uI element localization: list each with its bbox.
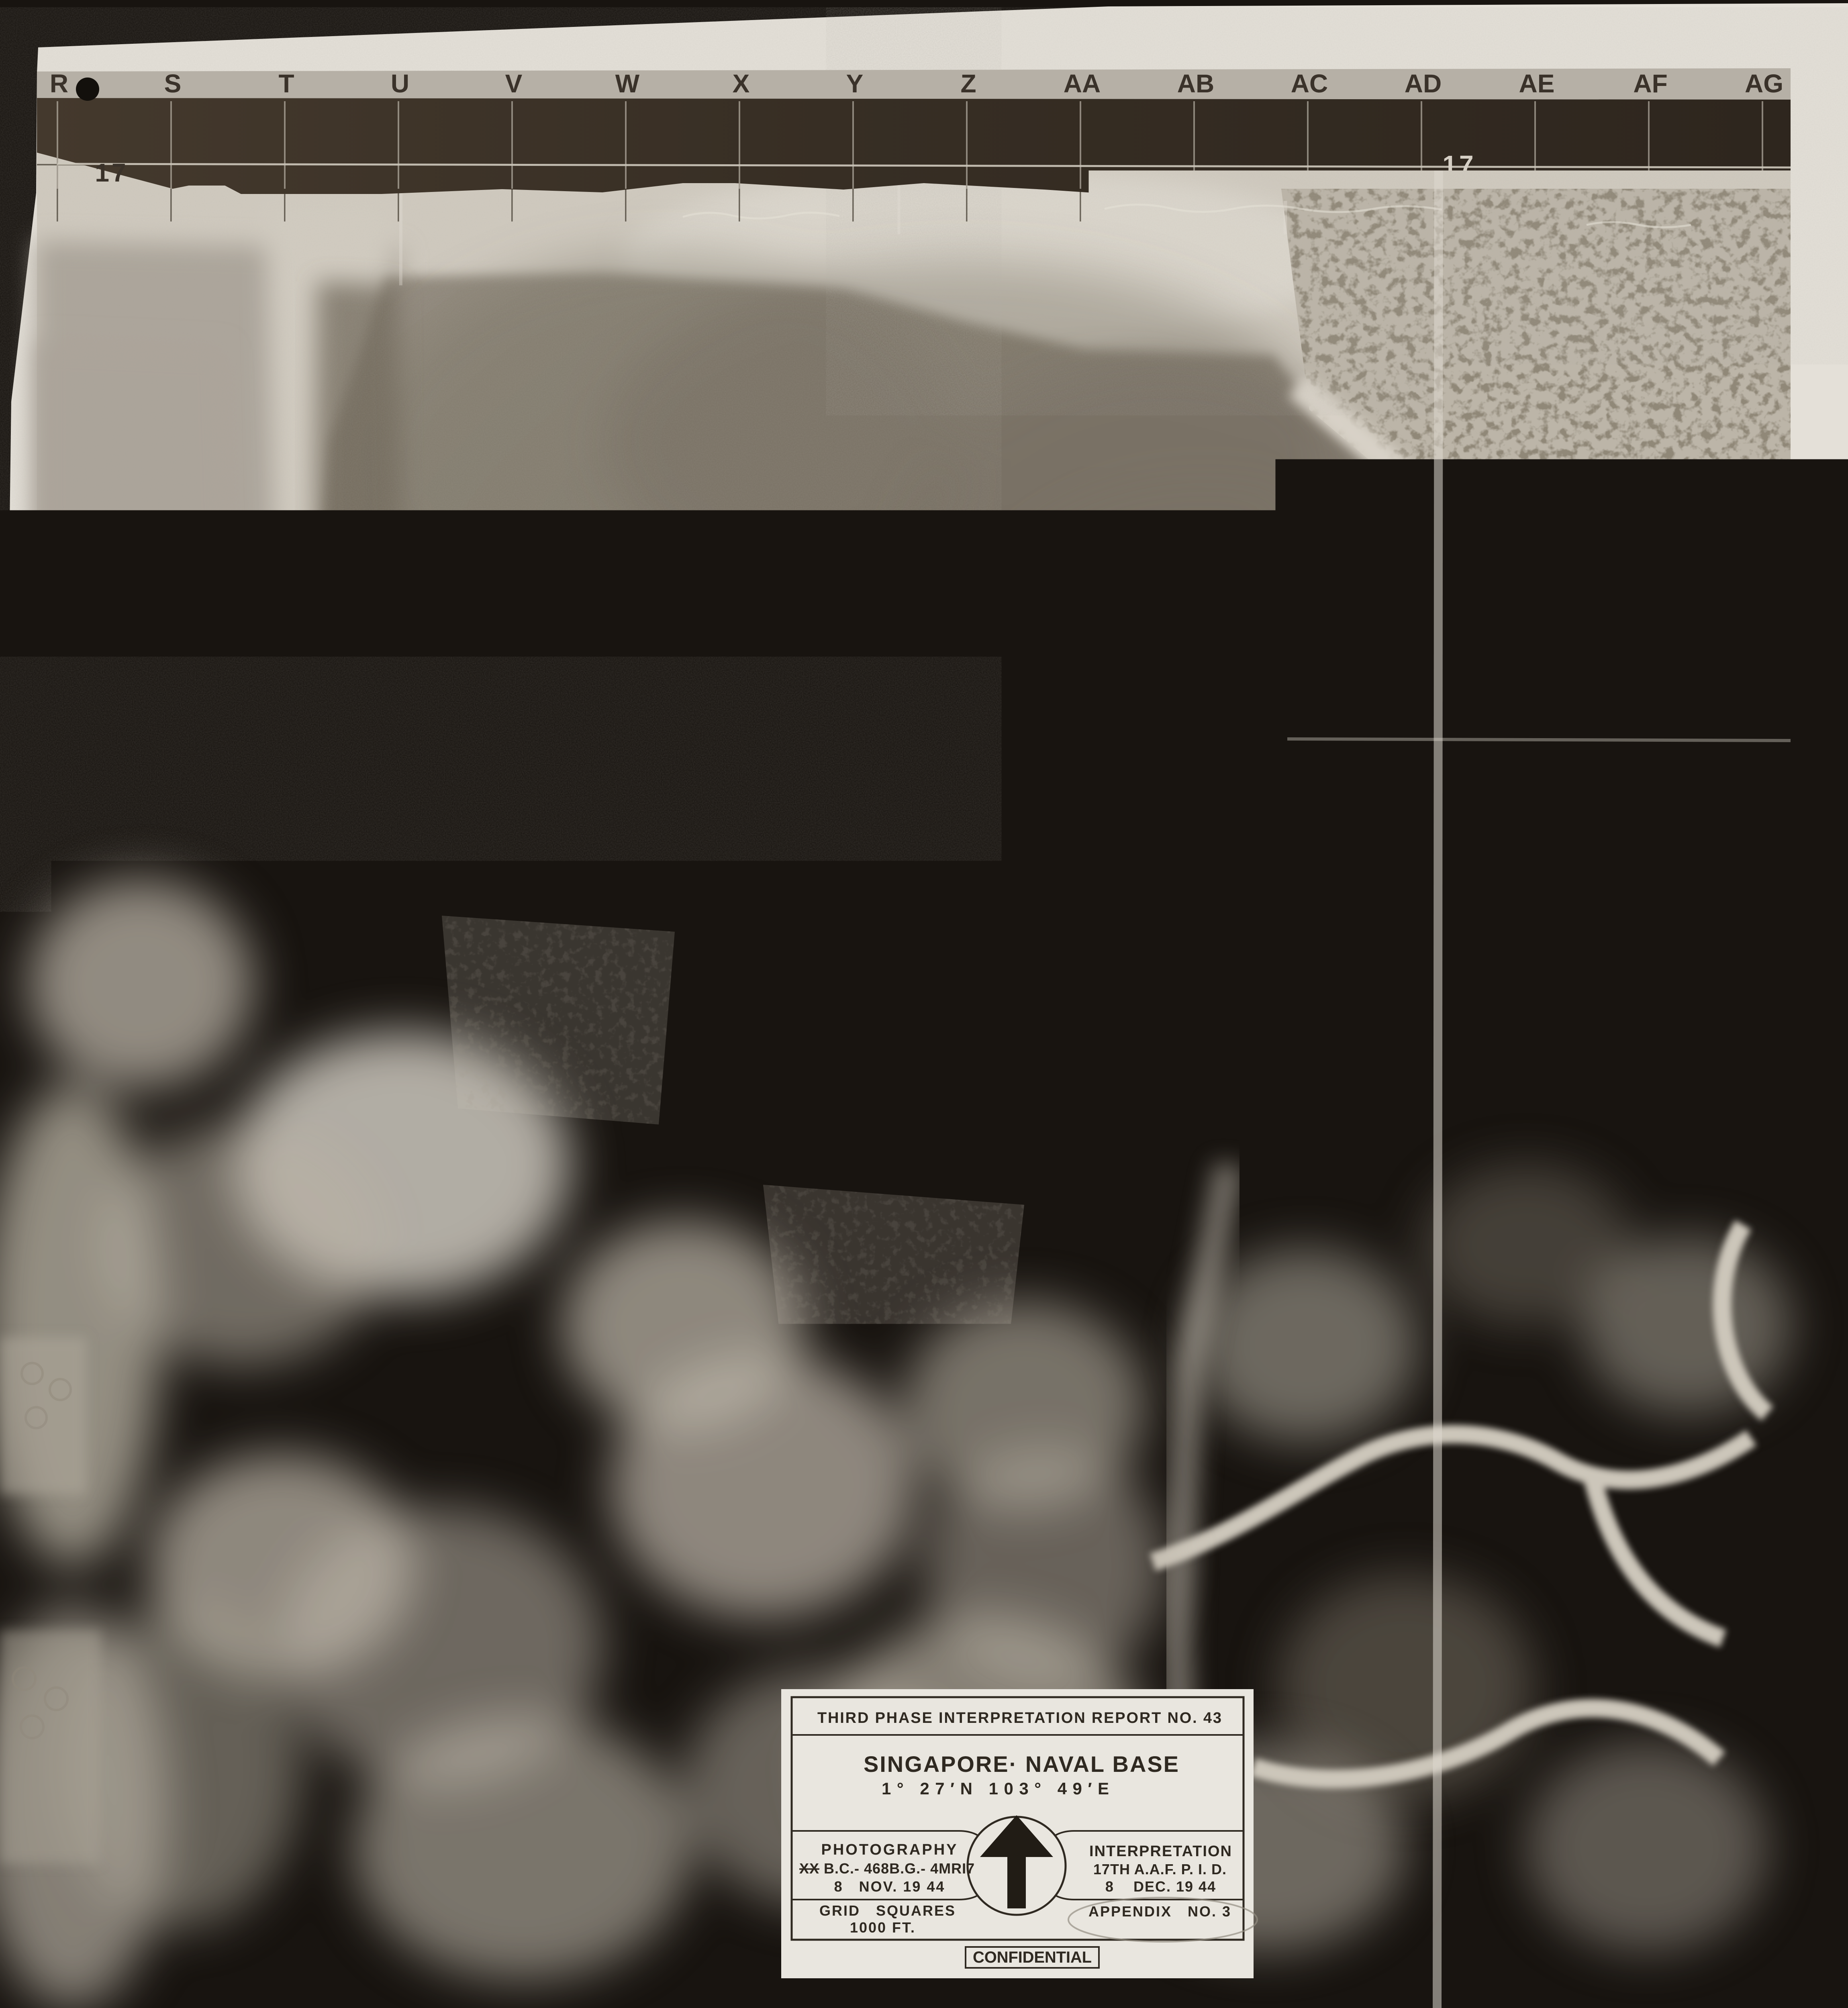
svg-text:17TH A.A.F. P. I. D.: 17TH A.A.F. P. I. D. [1093,1861,1227,1877]
svg-text:T23: T23 [825,1186,858,1204]
svg-text:Z: Z [958,1992,974,2008]
svg-text:3: 3 [828,1123,837,1138]
svg-text:5: 5 [104,1524,119,1552]
svg-text:T17: T17 [548,1471,580,1490]
svg-text:9: 9 [104,1066,119,1094]
svg-text:AB: AB [1175,1993,1212,2008]
svg-text:10: 10 [1444,950,1475,978]
svg-text:APPENDIX NO. 3: APPENDIX NO. 3 [1088,1903,1231,1920]
svg-text:14: 14 [1444,492,1475,520]
svg-text:XII: XII [655,1175,680,1194]
svg-text:AG: AG [1745,69,1783,98]
svg-text:M3: M3 [941,896,967,914]
svg-text:XX B.C.- 468B.G.- 4MRI7: XX B.C.- 468B.G.- 4MRI7 [799,1860,975,1877]
svg-text:U: U [391,69,409,98]
svg-text:8 DEC. 19 44: 8 DEC. 19 44 [1105,1878,1216,1895]
svg-text:10: 10 [96,952,127,980]
svg-text:4: 4 [1225,1206,1234,1221]
svg-text:K33: K33 [251,793,286,812]
svg-text:X: X [733,69,750,98]
svg-text:T27: T27 [1106,1141,1139,1160]
svg-text:N3: N3 [309,744,333,763]
svg-text:AE: AE [1519,69,1555,98]
svg-text:15: 15 [1444,378,1475,406]
svg-text:AE: AE [1517,1994,1552,2008]
svg-text:6: 6 [879,1319,888,1334]
svg-text:P2: P2 [916,872,939,891]
svg-text:VILLAGE: VILLAGE [974,1618,1070,1639]
svg-text:M17: M17 [568,1188,605,1206]
svg-text:U2: U2 [910,777,934,796]
svg-text:8: 8 [104,1181,119,1208]
svg-text:AD: AD [1402,1994,1439,2008]
svg-text:K5: K5 [1196,1174,1220,1193]
svg-text:1000 FT.: 1000 FT. [850,1919,916,1936]
svg-text:THIRD PHASE INTERPRETATION: THIRD PHASE INTERPRETATION REPORT NO. 43 [817,1710,1223,1726]
svg-text:2: 2 [715,1285,723,1300]
svg-text:J2: J2 [755,1254,776,1273]
svg-text:T24: T24 [861,1485,894,1504]
svg-text:CONFIDENTIAL: CONFIDENTIAL [973,1949,1092,1966]
svg-text:M9: M9 [327,690,352,709]
svg-text:1: 1 [513,845,522,860]
svg-text:11: 11 [1444,836,1474,863]
svg-text:M7: M7 [80,647,105,666]
svg-text:K16: K16 [219,793,253,812]
svg-text:N5: N5 [576,394,600,413]
svg-text:AA: AA [1061,1992,1098,2008]
svg-text:4: 4 [458,1364,467,1379]
svg-text:T25: T25 [753,1660,785,1679]
svg-text:N2: N2 [145,712,169,731]
svg-text:S: S [164,69,182,98]
svg-text:S6: S6 [239,1198,262,1217]
svg-text:U: U [388,1990,407,2008]
svg-text:K15: K15 [141,802,176,821]
svg-text:X15: X15 [704,1302,738,1321]
svg-text:N4: N4 [420,616,444,635]
svg-text:12: 12 [96,723,127,751]
svg-text:W: W [613,1990,637,2008]
svg-text:16: 16 [96,265,127,293]
svg-text:T: T [278,69,294,98]
svg-text:T16: T16 [365,1353,398,1372]
svg-text:4: 4 [104,1639,119,1666]
svg-text:SINGAPORE· NAVAL BASE: SINGAPORE· NAVAL BASE [864,1751,1181,1777]
svg-text:K27: K27 [278,1133,312,1151]
svg-text:←1000 FT.→: ←1000 FT.→ [1294,1406,1414,1426]
svg-text:11: 11 [97,837,127,865]
svg-text:JOHORE: JOHORE [117,558,294,582]
svg-text:2: 2 [1452,1866,1467,1894]
svg-text:AB: AB [1177,69,1214,98]
svg-text:T20: T20 [644,1396,677,1415]
svg-text:National Archives of Singapore: National Archives of Singapore [185,1018,1659,1120]
svg-text:X12: X12 [1128,1178,1162,1197]
svg-text:12: 12 [1444,721,1475,749]
svg-text:J3: J3 [254,1289,275,1308]
svg-text:W2: W2 [789,1395,817,1414]
svg-text:GRID SQUARES: GRID SQUARES [819,1902,956,1919]
svg-text:6: 6 [104,1410,119,1437]
svg-text:K19: K19 [429,1336,464,1355]
svg-text:INTERPRETATION: INTERPRETATION [1089,1843,1232,1860]
svg-text:T21: T21 [707,1378,739,1397]
svg-text:W3: W3 [18,862,45,881]
svg-text:K23: K23 [641,1764,675,1783]
svg-text:T: T [276,1989,292,2008]
svg-text:T22: T22 [790,1449,823,1467]
svg-text:T26: T26 [1016,1300,1048,1319]
svg-text:AA: AA [1064,69,1101,98]
svg-text:V: V [505,69,523,98]
svg-text:4: 4 [232,847,241,862]
svg-text:T19: T19 [641,1226,674,1245]
svg-text:17: 17 [1442,150,1476,179]
svg-text:PHOTOGRAPHY: PHOTOGRAPHY [821,1841,958,1858]
svg-text:SEMBAWANG: SEMBAWANG [940,1592,1085,1612]
svg-text:3: 3 [147,851,156,866]
svg-text:15: 15 [96,380,127,407]
svg-text:T13: T13 [247,1420,279,1439]
svg-text:Y: Y [844,1991,861,2008]
svg-text:1: 1 [370,896,379,912]
svg-text:4: 4 [345,822,354,837]
svg-text:8: 8 [1452,1179,1467,1207]
svg-text:M12: M12 [894,889,930,908]
svg-text:8 NOV. 19 44: 8 NOV. 19 44 [834,1878,945,1895]
svg-text:17: 17 [95,158,128,187]
svg-text:U3: U3 [1012,1137,1036,1156]
svg-text:AC: AC [1291,69,1328,98]
svg-text:M5: M5 [1039,939,1065,957]
svg-text:M2: M2 [253,353,278,371]
svg-text:K21: K21 [678,1259,712,1277]
svg-text:AC: AC [1288,1993,1325,2008]
svg-text:R: R [50,69,68,98]
svg-text:N7: N7 [1697,699,1721,718]
svg-text:Q1: Q1 [55,1430,80,1449]
svg-text:K10: K10 [572,1694,607,1712]
svg-text:W: W [615,69,640,98]
svg-text:AD: AD [1405,69,1442,98]
svg-text:T14: T14 [711,1231,743,1249]
svg-text:7: 7 [1452,1294,1467,1321]
svg-text:2: 2 [104,1867,119,1895]
svg-text:16: 16 [1444,263,1475,291]
svg-text:Y: Y [846,69,864,98]
svg-text:Z: Z [960,69,976,98]
svg-text:V: V [503,1990,520,2008]
svg-text:OF: OF [25,561,67,584]
svg-text:R: R [47,1988,66,2008]
svg-text:14: 14 [96,494,127,522]
svg-text:M19: M19 [1103,515,1139,534]
svg-text:K9: K9 [21,902,45,921]
svg-text:AG: AG [1742,1995,1781,2008]
svg-text:T12: T12 [301,983,333,1002]
svg-text:K18: K18 [596,824,631,843]
svg-text:K29: K29 [319,841,354,860]
svg-text:K20: K20 [878,1291,913,1310]
svg-text:M22: M22 [870,848,906,867]
svg-text:P3: P3 [695,912,718,931]
svg-text:X13: X13 [1148,982,1182,1000]
svg-text:3: 3 [104,1753,119,1781]
svg-text:13: 13 [1444,607,1475,635]
svg-text:1: 1 [609,1720,618,1736]
svg-text:1: 1 [635,1792,644,1807]
svg-text:13: 13 [96,608,127,636]
svg-text:W4: W4 [95,922,123,941]
svg-text:M11: M11 [866,870,901,889]
svg-text:5: 5 [1452,1522,1467,1550]
svg-text:AF: AF [1633,69,1667,98]
svg-text:N6: N6 [749,834,773,853]
svg-text:S: S [162,1988,179,2008]
svg-text:AF: AF [1631,1994,1665,2008]
svg-text:X: X [730,1991,747,2008]
svg-text:1: 1 [972,1243,981,1259]
svg-text:K17: K17 [502,791,537,810]
svg-text:2: 2 [325,897,334,912]
svg-text:7: 7 [104,1295,119,1323]
svg-text:4: 4 [1452,1637,1467,1665]
svg-text:M10: M10 [427,712,463,731]
svg-text:T18: T18 [568,1671,600,1690]
